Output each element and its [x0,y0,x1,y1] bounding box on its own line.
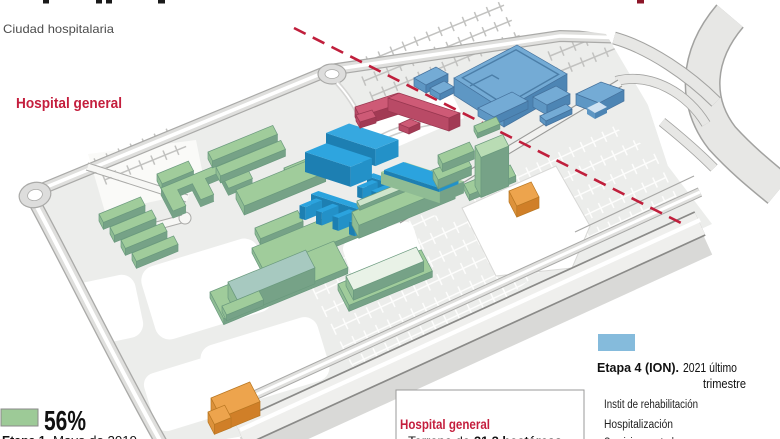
svg-text:Mayo de 2019: Mayo de 2019 [53,434,137,439]
svg-text:Hospitalización: Hospitalización [604,419,673,431]
svg-text:Hospital general: Hospital general [16,96,122,112]
svg-text:2021 último: 2021 último [683,360,737,375]
svg-text:trimestre: trimestre [703,376,746,391]
svg-text:56%: 56% [44,405,86,436]
svg-text:Instit de rehabilitación: Instit de rehabilitación [604,399,698,411]
svg-text:Terreno de: Terreno de [408,434,470,439]
svg-text:Etapa 1.: Etapa 1. [2,434,49,439]
svg-text:21,3 hectáreas: 21,3 hectáreas [474,434,562,439]
svg-text:Etapa 4 (ION).: Etapa 4 (ION). [597,360,679,375]
svg-text:Ciudad hospitalaria: Ciudad hospitalaria [3,22,114,36]
svg-text:Hospital general: Hospital general [400,416,490,432]
